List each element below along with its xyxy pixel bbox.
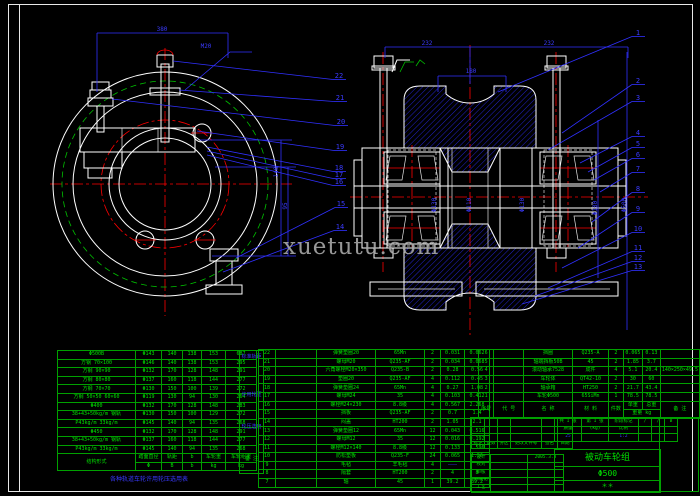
table-cell: 方钢 70×70 [58,385,136,394]
table-cell: 8.8级 [376,444,425,453]
table-cell: 100 [183,385,202,394]
table-cell: 140 [162,419,183,428]
table-cell: 毛毡 [317,461,376,470]
table-cell: 0.27 [441,384,465,393]
table-cell: 代 号 [494,401,524,418]
table-cell: Φ145 [136,419,162,428]
table-cell: 1 [425,478,441,487]
table-cell: 140 [162,445,183,454]
table-cell: 0.043 [441,427,465,436]
table-cell [276,453,317,462]
table-cell: Φ143 [136,351,162,360]
table-cell [639,434,652,442]
table-cell: HT250 [572,384,608,393]
table-cell: 10 [259,453,276,462]
table-cell [472,419,485,427]
table-cell: 轴端挡板50B [524,358,573,367]
table-cell: 15 [259,410,276,419]
table-cell [276,427,317,436]
table-cell: 153 [202,359,226,368]
table-cell: Q235-AF [376,410,425,419]
table-cell: 挡圈 [524,350,573,359]
table-cell: 踏面直径 [136,454,162,463]
table-cell: 结构形式 [58,454,136,471]
table-cell: b [183,462,202,471]
table-cell [276,350,317,359]
table-cell: 128 [183,428,202,437]
table-cell [276,367,317,376]
table-cell [276,384,317,393]
table-cell: 2 [479,384,494,393]
table-cell: 方钢 80×80 [58,376,136,385]
table-cell: 140 [162,351,183,360]
spec-table-caption: 各种轨道车轮许用轮压选用表 [60,474,238,483]
table-cell: 序号 [479,401,494,418]
table-cell: Q235-B [376,367,425,376]
table-cell: 0.112 [441,375,465,384]
table-cell: 挡板 [317,410,376,419]
table-cell: 148 [202,428,226,437]
table-cell: 2 [425,350,441,359]
table-cell: 车轮重 [202,454,226,463]
table-cell: 弹簧垫圈20 [317,350,376,359]
table-cell: 16 [259,401,276,410]
table-cell: 25 [555,434,582,442]
table-cell: 94 [183,393,202,402]
table-cell [491,462,528,470]
table-cell: Φ400 [58,402,136,411]
table-cell: 30 [623,375,642,384]
table-cell: 分区 [498,441,511,449]
table-cell: 标准化 [472,477,491,485]
table-cell: 处数 [485,441,498,449]
signature-grid: 设计2005.3.3校对审核标准化工艺 [471,454,564,493]
table-cell: 2 [609,375,624,384]
table-cell: 144 [202,376,226,385]
table-cell [276,470,317,479]
table-cell: 签名 [542,441,558,449]
table-cell [639,426,652,434]
table-cell: 2 [425,470,441,479]
table-cell: 4 [425,461,441,470]
drawing-title: 被动车轮组 [555,450,660,467]
table-cell: 车轮体 [524,375,573,384]
table-cell [660,350,699,359]
table-cell: 140×250×49.5 [660,367,699,376]
table-cell: 共 1 张 [555,419,582,427]
table-cell: 单重 [623,401,642,410]
table-cell [511,434,542,442]
table-cell: 2 [425,418,441,427]
table-cell: 24 [425,453,441,462]
table-cell: 0.065 [623,350,642,359]
table-cell: 2 [609,350,624,359]
table-cell: ——— [441,461,465,470]
table-cell: 11 [259,444,276,453]
table-cell: 170 [162,368,183,377]
table-cell: 135 [202,419,226,428]
table-cell: 闷盖 [317,418,376,427]
table-cell: 94 [183,445,202,454]
table-cell: 45 [572,358,608,367]
table-cell: 39.2 [441,478,465,487]
table-cell: 总重 [642,401,660,410]
table-cell: 160 [162,376,183,385]
table-cell [276,444,317,453]
table-cell: Φ137 [136,376,162,385]
table-cell: 138 [183,359,202,368]
table-cell: 153 [202,351,226,360]
table-cell: 65Mn [376,384,425,393]
table-cell [511,419,542,427]
table-cell: 弹簧垫圈24 [317,384,376,393]
table-cell [582,434,609,442]
table-cell: 比例 [609,426,639,434]
table-cell [276,461,317,470]
table-cell [472,434,485,442]
table-cell: 12 [425,435,441,444]
table-cell: 148 [202,368,226,377]
table-cell: 垫圈20 [317,375,376,384]
table-cell: Φ130 [136,385,162,394]
table-cell: 94 [183,419,202,428]
table-cell: 4 [609,367,624,376]
table-cell: Q235-F [376,453,425,462]
table-cell: Φ132 [136,428,162,437]
table-cell: 设计 [472,455,491,463]
drawing-title-cell: 被动车轮组 Φ500 ＊＊ [554,449,661,493]
table-cell: 20.4 [642,367,660,376]
table-cell: QT42-10 [572,375,608,384]
table-cell: 工艺 [472,485,491,493]
table-cell: Φ500B [58,351,136,360]
table-cell: 35 [376,435,425,444]
table-cell: 0.7 [441,410,465,419]
table-cell: 118 [183,436,202,445]
table-cell: 138 [183,351,202,360]
table-cell: 2 [425,367,441,376]
table-cell: 21 [259,358,276,367]
table-cell: 审核 [472,470,491,478]
table-cell: 1.85 [623,358,642,367]
table-cell: 2 [609,384,624,393]
table-cell: Q235-A [572,350,608,359]
table-cell: 17 [259,392,276,401]
table-cell: 弹簧垫圈12 [317,427,376,436]
table-cell: 标记 [472,441,485,449]
table-cell [660,384,699,393]
table-cell [276,375,317,384]
table-cell: 21.7 [623,384,642,393]
table-cell: 160 [162,436,183,445]
table-cell: 45 [376,478,425,487]
table-cell [276,358,317,367]
table-cell: Φ119 [136,393,162,402]
title-block-empty-cell [659,418,699,491]
table-cell: 78.5 [623,392,642,401]
table-cell: 0.28 [441,367,465,376]
table-cell: 0.567 [441,401,465,410]
table-cell: 六角螺栓M20×350 [317,367,376,376]
table-cell: 135 [202,445,226,454]
table-cell: 4 [425,375,441,384]
table-cell: 0.016 [441,435,465,444]
table-cell: 12 [425,427,441,436]
table-cell: 5 [479,358,494,367]
table-cell: 螺母M12 [317,435,376,444]
table-cell: 35 [376,392,425,401]
table-cell: HT200 [376,470,425,479]
table-cell: 60 [642,375,660,384]
table-cell: 阶段标记 [609,419,639,427]
table-cell: 4 [425,384,441,393]
table-cell: 防松垫板 [317,453,376,462]
table-cell: 轴承箱 [524,384,573,393]
table-cell: 18 [259,384,276,393]
table-cell: 65SiMn [572,392,608,401]
table-cell: 22 [259,350,276,359]
table-cell: 羊毛毡 [376,461,425,470]
table-cell [472,426,485,434]
table-cell: 170 [162,402,183,411]
table-cell: 38+43+50kg/m 钢轨 [58,411,136,420]
table-cell: 3.7 [642,358,660,367]
table-cell: 5.1 [623,367,642,376]
table-cell: 12 [425,444,441,453]
table-cell: P43kg/m 33kg/m [58,419,136,428]
table-cell: P43kg/m 33kg/m [58,445,136,454]
table-cell: 78.5 [642,392,660,401]
table-cell: 6 [479,350,494,359]
table-cell: Φ [136,462,162,471]
table-cell [494,358,524,367]
table-cell [485,419,498,427]
drawing-number: ＊＊ [555,481,660,492]
table-cell: Q235-AF [376,375,425,384]
table-cell [485,426,498,434]
table-cell [485,434,498,442]
table-cell: Φ146 [136,359,162,368]
table-cell: 车轮Φ500 [524,392,573,401]
table-cell: 螺母M20 [317,358,376,367]
table-cell [494,384,524,393]
table-cell [494,375,524,384]
table-cell: 材 料 [572,401,608,418]
table-cell: 170 [162,428,183,437]
table-cell: 139 [202,385,226,394]
bom-table-items-6-1: 6挡圈Q235-A20.0650.135轴端挡板50B4521.853.74滚动… [478,349,700,419]
table-cell: 方钢 90×90 [58,368,136,377]
table-cell: 日期 [558,441,573,449]
table-cell: Φ130 [136,411,162,420]
table-cell: 144 [202,436,226,445]
table-cell: 130 [162,393,183,402]
table-cell [498,434,511,442]
table-cell: 件数 [609,401,624,418]
table-cell: 0.065 [441,453,465,462]
table-cell: 校对 [472,462,491,470]
table-cell: 隔套 [317,470,376,479]
table-cell: 4 [425,392,441,401]
drawing-size: Φ500 [555,467,660,481]
table-cell: 150 [162,411,183,420]
table-cell: Q235-AF [376,358,425,367]
table-cell: 0.103 [441,392,465,401]
table-cell: 118 [183,376,202,385]
bom-table-items-22-7: 22弹簧垫圈2065Mn20.0310.06221螺母M20Q235-AF20.… [258,349,490,488]
table-cell: 100 [183,411,202,420]
table-cell: 螺母M24 [317,392,376,401]
table-cell [276,392,317,401]
table-cell: Φ132 [136,402,162,411]
watermark: xuetutu.com [283,234,439,260]
table-cell [276,418,317,427]
table-cell: 螺栓M24×230 [317,401,376,410]
table-cell: Φ450 [58,428,136,437]
table-cell: 4 [425,401,441,410]
title-block: 标记处数分区更改文件号签名日期 设计2005.3.3校对审核标准化工艺 共 1 … [470,417,699,492]
table-cell: 19 [259,375,276,384]
table-cell: Φ137 [136,436,162,445]
table-cell: 4 [479,367,494,376]
table-cell: 130 [202,393,226,402]
table-cell: 1 [479,392,494,401]
table-cell [276,410,317,419]
table-cell: 备 注 [660,401,699,418]
table-cell: 150 [162,385,183,394]
table-cell: Φ132 [136,368,162,377]
table-cell: 43.4 [642,384,660,393]
table-cell [494,350,524,359]
table-cell [660,392,699,401]
table-cell: 7 [259,478,276,487]
table-cell: 4 [441,470,465,479]
table-cell: 第 1 张 [582,419,609,427]
table-cell: 质量 [555,426,582,434]
table-cell: 0.133 [441,444,465,453]
table-cell: 1.05 [441,418,465,427]
table-cell: 1:2 [609,434,639,442]
table-cell: 螺栓M12×140 [317,444,376,453]
table-cell: 成件 [572,367,608,376]
table-cell [498,426,511,434]
table-cell: 2 [425,358,441,367]
table-cell: Φ145 [136,445,162,454]
sheet-margin-line [19,4,20,491]
table-cell: 更改文件号 [511,441,542,449]
table-cell [494,392,524,401]
table-cell [276,401,317,410]
table-cell: 148 [202,402,226,411]
wheel-spec-table: Φ500BΦ143140138153687方钢 70×100Φ146140138… [57,350,257,471]
table-cell: B [162,462,183,471]
table-cell [660,358,699,367]
table-cell: 轨距 [162,454,183,463]
table-cell [491,477,528,485]
table-cell [276,435,317,444]
table-cell: 8 [259,470,276,479]
table-cell: (kg) [582,426,609,434]
table-cell: 2 [425,410,441,419]
table-cell [491,455,528,463]
table-cell: b [183,454,202,463]
table-cell: 9 [259,461,276,470]
table-cell: 129 [202,411,226,420]
table-cell: 12 [259,435,276,444]
table-cell: HT200 [376,418,425,427]
table-cell: 65Mn [376,427,425,436]
table-cell [660,375,699,384]
table-cell: 名 称 [524,401,573,418]
table-cell: 65Mn [376,350,425,359]
table-cell [491,485,528,493]
table-cell: 128 [183,402,202,411]
table-cell: 方钢 70×100 [58,359,136,368]
table-cell: ∕ [639,419,652,427]
table-cell: kg [202,462,226,471]
table-cell [494,367,524,376]
table-cell: 8.8级 [376,401,425,410]
table-cell: 13 [259,427,276,436]
table-cell: 0.13 [642,350,660,359]
table-cell [511,426,542,434]
table-cell: 方钢 50×50 60×60 [58,393,136,402]
table-cell: 38+43+50kg/m 钢轨 [58,436,136,445]
table-cell: 14 [259,418,276,427]
table-cell: 1 [609,392,624,401]
table-cell [498,419,511,427]
table-cell [491,470,528,478]
table-cell: 轴 [317,478,376,487]
table-cell: 128 [183,368,202,377]
table-cell: 140 [162,359,183,368]
table-cell: 20 [259,367,276,376]
table-cell: 0.031 [441,350,465,359]
table-cell: 2 [609,358,624,367]
table-cell: 滚动轴承7528 [524,367,573,376]
cad-drawing-sheet: 380M2014095232232180Φ130Φ110Φ130Φ180Φ500… [0,0,700,496]
table-cell [276,478,317,487]
table-cell: 3 [479,375,494,384]
table-cell: 0.034 [441,358,465,367]
